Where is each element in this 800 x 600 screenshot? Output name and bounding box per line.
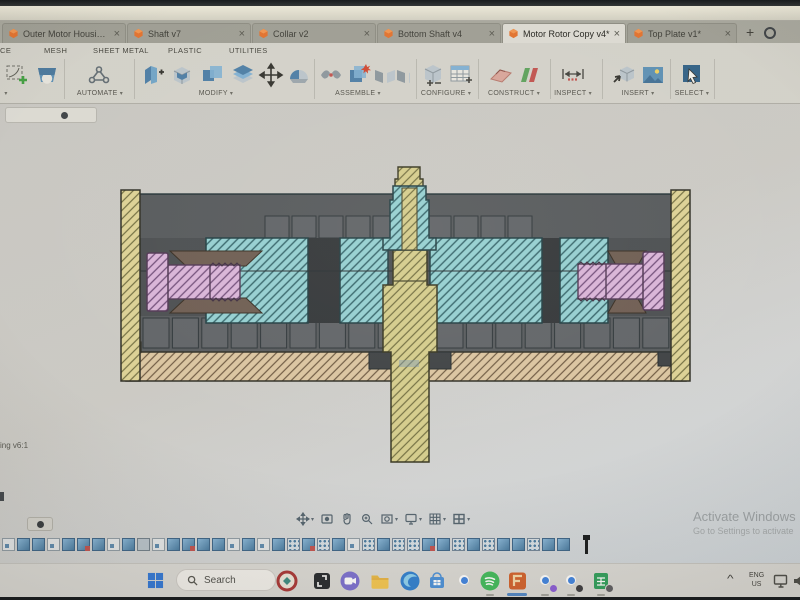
timeline-feature-37-extrude[interactable] [542,538,555,551]
capture-app-icon[interactable] [311,570,333,592]
tab-collar[interactable]: Collar v2 × [252,23,376,43]
tab-label: Collar v2 [273,29,360,39]
assemble-group-label[interactable]: ASSEMBLE ▾ [335,90,381,97]
timeline-feature-11-sketch[interactable] [152,538,165,551]
combine-icon[interactable] [200,62,226,88]
menu-utilities[interactable]: UTILITIES [229,46,268,55]
monitor-photo: Outer Motor Housing v6 × Shaft v7 × Coll… [0,0,800,600]
dropdown-caret-icon: ▾ [467,516,470,523]
record-dot-icon [37,521,44,528]
chrome-profile-2-icon[interactable] [534,570,556,592]
tray-display-icon[interactable] [772,572,794,594]
timeline-feature-32-extrude[interactable] [467,538,480,551]
timeline-feature-33-pattern[interactable] [482,538,495,551]
tab-shaft[interactable]: Shaft v7 × [127,23,251,43]
timeline-feature-25-pattern[interactable] [362,538,375,551]
offset-plane-icon[interactable] [516,62,542,88]
fusion360-icon[interactable] [506,570,528,592]
microsoft-store-icon[interactable] [426,570,448,592]
timeline-feature-8-sketch[interactable] [107,538,120,551]
menu-sheet-metal[interactable]: SHEET METAL [93,46,149,55]
tray-volume-icon[interactable] [792,573,800,595]
timeline-feature-35-extrude[interactable] [512,538,525,551]
timeline-feature-21-edit[interactable] [302,538,315,551]
create-form-icon[interactable] [34,62,60,88]
close-icon[interactable]: × [614,29,620,39]
timeline-feature-36-pattern[interactable] [527,538,540,551]
fusion-doc-icon [383,28,394,39]
select-icon[interactable] [680,62,706,88]
close-icon[interactable]: × [489,29,495,39]
grid-icon[interactable]: ▾ [428,512,446,526]
viewport-canvas[interactable]: ing v6:1 ▾ ▾ ▾ ▾ [0,104,800,563]
tab-label: Outer Motor Housing v6 [23,29,110,39]
timeline-feature-12-extrude[interactable] [167,538,180,551]
toolbar-ribbon: ▾ AUTOMATE ▾ MODIFY ▾ ASSEMBLE ▾ [0,57,800,104]
tray-chevron-up-icon[interactable]: ^ [727,574,734,585]
timeline-feature-17-extrude[interactable] [242,538,255,551]
fusion-title-bar [0,6,800,21]
dropdown-caret-icon: ▾ [443,516,446,523]
automate-icon[interactable] [86,62,112,88]
tab-outer-motor-housing[interactable]: Outer Motor Housing v6 × [2,23,126,43]
pan-icon[interactable]: ▾ [296,512,314,526]
timeline-feature-9-extrude[interactable] [122,538,135,551]
create-sketch-icon[interactable] [4,62,30,88]
browser-dot-icon [61,112,68,119]
automate-group-label[interactable]: AUTOMATE ▾ [77,90,123,97]
menu-plastic[interactable]: PLASTIC [168,46,202,55]
activate-windows-watermark: Activate Windows Go to Settings to activ… [693,509,796,536]
configure-group-label[interactable]: CONFIGURE ▾ [421,90,471,97]
fusion-doc-icon [258,28,269,39]
fit-icon[interactable]: ▾ [380,512,398,526]
close-icon[interactable]: × [725,29,731,39]
timeline-feature-22-pattern[interactable] [317,538,330,551]
close-icon[interactable]: × [114,29,120,39]
timeline-feature-1-sketch[interactable] [2,538,15,551]
timeline-feature-10-component[interactable] [137,538,150,551]
orbit-icon[interactable] [320,512,334,526]
chat-app-icon[interactable] [339,570,361,592]
timeline-feature-31-pattern[interactable] [452,538,465,551]
tab-label: Motor Rotor Copy v4* [523,29,610,39]
timeline-feature-5-extrude[interactable] [62,538,75,551]
offset-face-icon[interactable] [230,62,256,88]
shaft-rod[interactable] [402,188,417,250]
joint-icon[interactable] [318,62,344,88]
inspect-group-label[interactable]: INSPECT ▾ [554,90,592,97]
start-button[interactable] [147,572,169,594]
fusion-active-indicator [507,593,527,596]
tray-language-indicator[interactable]: ENG US [749,571,764,589]
browser-panel-collapsed[interactable] [5,107,97,123]
chrome2-running-indicator [541,594,549,596]
press-pull-icon[interactable] [140,62,166,88]
measure-icon[interactable] [560,62,586,88]
timeline-feature-30-extrude[interactable] [437,538,450,551]
timeline-feature-18-sketch[interactable] [257,538,270,551]
viewports-icon[interactable]: ▾ [452,512,470,526]
timeline-feature-19-extrude[interactable] [272,538,285,551]
timeline-feature-15-extrude[interactable] [212,538,225,551]
fusion-doc-icon [633,28,644,39]
shell-icon[interactable] [170,62,196,88]
spotify-running-indicator [486,594,494,596]
select-group-label[interactable]: SELECT ▾ [675,90,709,97]
plate-bore-right [429,352,451,369]
spotify-icon[interactable] [479,570,501,592]
windows-taskbar: Search ^ ENG US [0,563,800,597]
display-settings-icon[interactable]: ▾ [404,512,422,526]
timeline-feature-16-sketch[interactable] [227,538,240,551]
timeline-feature-2-extrude[interactable] [17,538,30,551]
insert-group-label[interactable]: INSERT ▾ [622,90,655,97]
dropdown-caret-icon[interactable]: ▾ [4,90,7,97]
timeline-playhead[interactable] [585,535,588,554]
timeline-feature-23-extrude[interactable] [332,538,345,551]
modify-group-label[interactable]: MODIFY ▾ [199,90,233,97]
timeline-track [2,538,570,551]
tab-motor-rotor-copy-active[interactable]: Motor Rotor Copy v4* × [502,23,626,43]
clipped-edge-artifact [0,492,4,501]
dropdown-caret-icon: ▾ [311,516,314,523]
insert-canvas-icon[interactable] [640,62,666,88]
tab-label: Bottom Shaft v4 [398,29,485,39]
fusion-doc-icon [8,28,19,39]
timeline-feature-7-extrude[interactable] [92,538,105,551]
construct-group-label[interactable]: CONSTRUCT ▾ [488,90,540,97]
new-component-icon[interactable] [346,62,372,88]
tab-bottom-shaft[interactable]: Bottom Shaft v4 × [377,23,501,43]
dropdown-caret-icon: ▾ [395,516,398,523]
browser-root-label[interactable]: ing v6:1 [0,441,28,450]
close-icon[interactable]: × [239,29,245,39]
timeline-feature-4-sketch[interactable] [47,538,60,551]
housing-wall-right[interactable] [671,190,690,381]
timeline-feature-29-edit[interactable] [422,538,435,551]
search-icon [187,575,198,586]
menu-surface[interactable]: SURFACE [0,46,11,55]
sheets-running-indicator [597,594,605,596]
chrome-profile-3-icon[interactable] [560,570,582,592]
edge-icon[interactable] [399,570,421,592]
file-explorer-icon[interactable] [369,570,391,592]
timeline-feature-28-pattern[interactable] [407,538,420,551]
timeline-feature-6-edit[interactable] [77,538,90,551]
plate-bore-left [369,352,391,369]
close-icon[interactable]: × [364,29,370,39]
timeline-feature-34-extrude[interactable] [497,538,510,551]
search-label: Search [204,575,236,586]
section-view-drawing [0,104,800,563]
timeline-feature-27-pattern[interactable] [392,538,405,551]
move-copy-icon[interactable] [258,62,284,88]
timeline-feature-24-sketch[interactable] [347,538,360,551]
timeline-feature-13-edit[interactable] [182,538,195,551]
timeline-feature-3-extrude[interactable] [32,538,45,551]
tab-top-plate[interactable]: Top Plate v1* × [627,23,737,43]
dropdown-caret-icon: ▾ [419,516,422,523]
new-tab-button[interactable]: + [746,24,754,40]
chrome-icon[interactable] [453,570,475,592]
school-logo-icon[interactable] [276,570,298,592]
timeline-feature-38-extrude[interactable] [557,538,570,551]
configuration-icon[interactable] [420,62,446,88]
ribbon-tab-row: SURFACE MESH SHEET METAL PLASTIC UTILITI… [0,43,800,57]
shaft-top-cap[interactable] [395,167,423,188]
insert-mesh-icon[interactable] [612,62,638,88]
tab-label: Shaft v7 [148,29,235,39]
housing-wall-left[interactable] [121,190,140,381]
menu-mesh[interactable]: MESH [44,46,67,55]
document-tab-bar: Outer Motor Housing v6 × Shaft v7 × Coll… [0,21,800,43]
timeline-feature-14-extrude[interactable] [197,538,210,551]
taskbar-search[interactable]: Search [176,569,276,591]
configuration-table-icon[interactable] [448,62,474,88]
sheets-app-icon[interactable] [590,570,612,592]
job-status-icon[interactable] [764,27,776,39]
construction-plane-icon[interactable] [488,62,514,88]
fusion-doc-icon [508,28,519,39]
joint-origin-icon[interactable] [394,62,410,88]
tab-label: Top Plate v1* [648,29,721,39]
timeline-feature-26-extrude[interactable] [377,538,390,551]
fusion-doc-icon [133,28,144,39]
revolve-dome-icon[interactable] [286,62,312,88]
view-navigation-bar: ▾ ▾ ▾ ▾ ▾ [296,512,470,526]
zoom-icon[interactable] [360,512,374,526]
timeline-options-button[interactable] [27,517,53,531]
timeline-feature-20-pattern[interactable] [287,538,300,551]
chrome3-running-indicator [567,594,575,596]
hand-icon[interactable] [340,512,354,526]
